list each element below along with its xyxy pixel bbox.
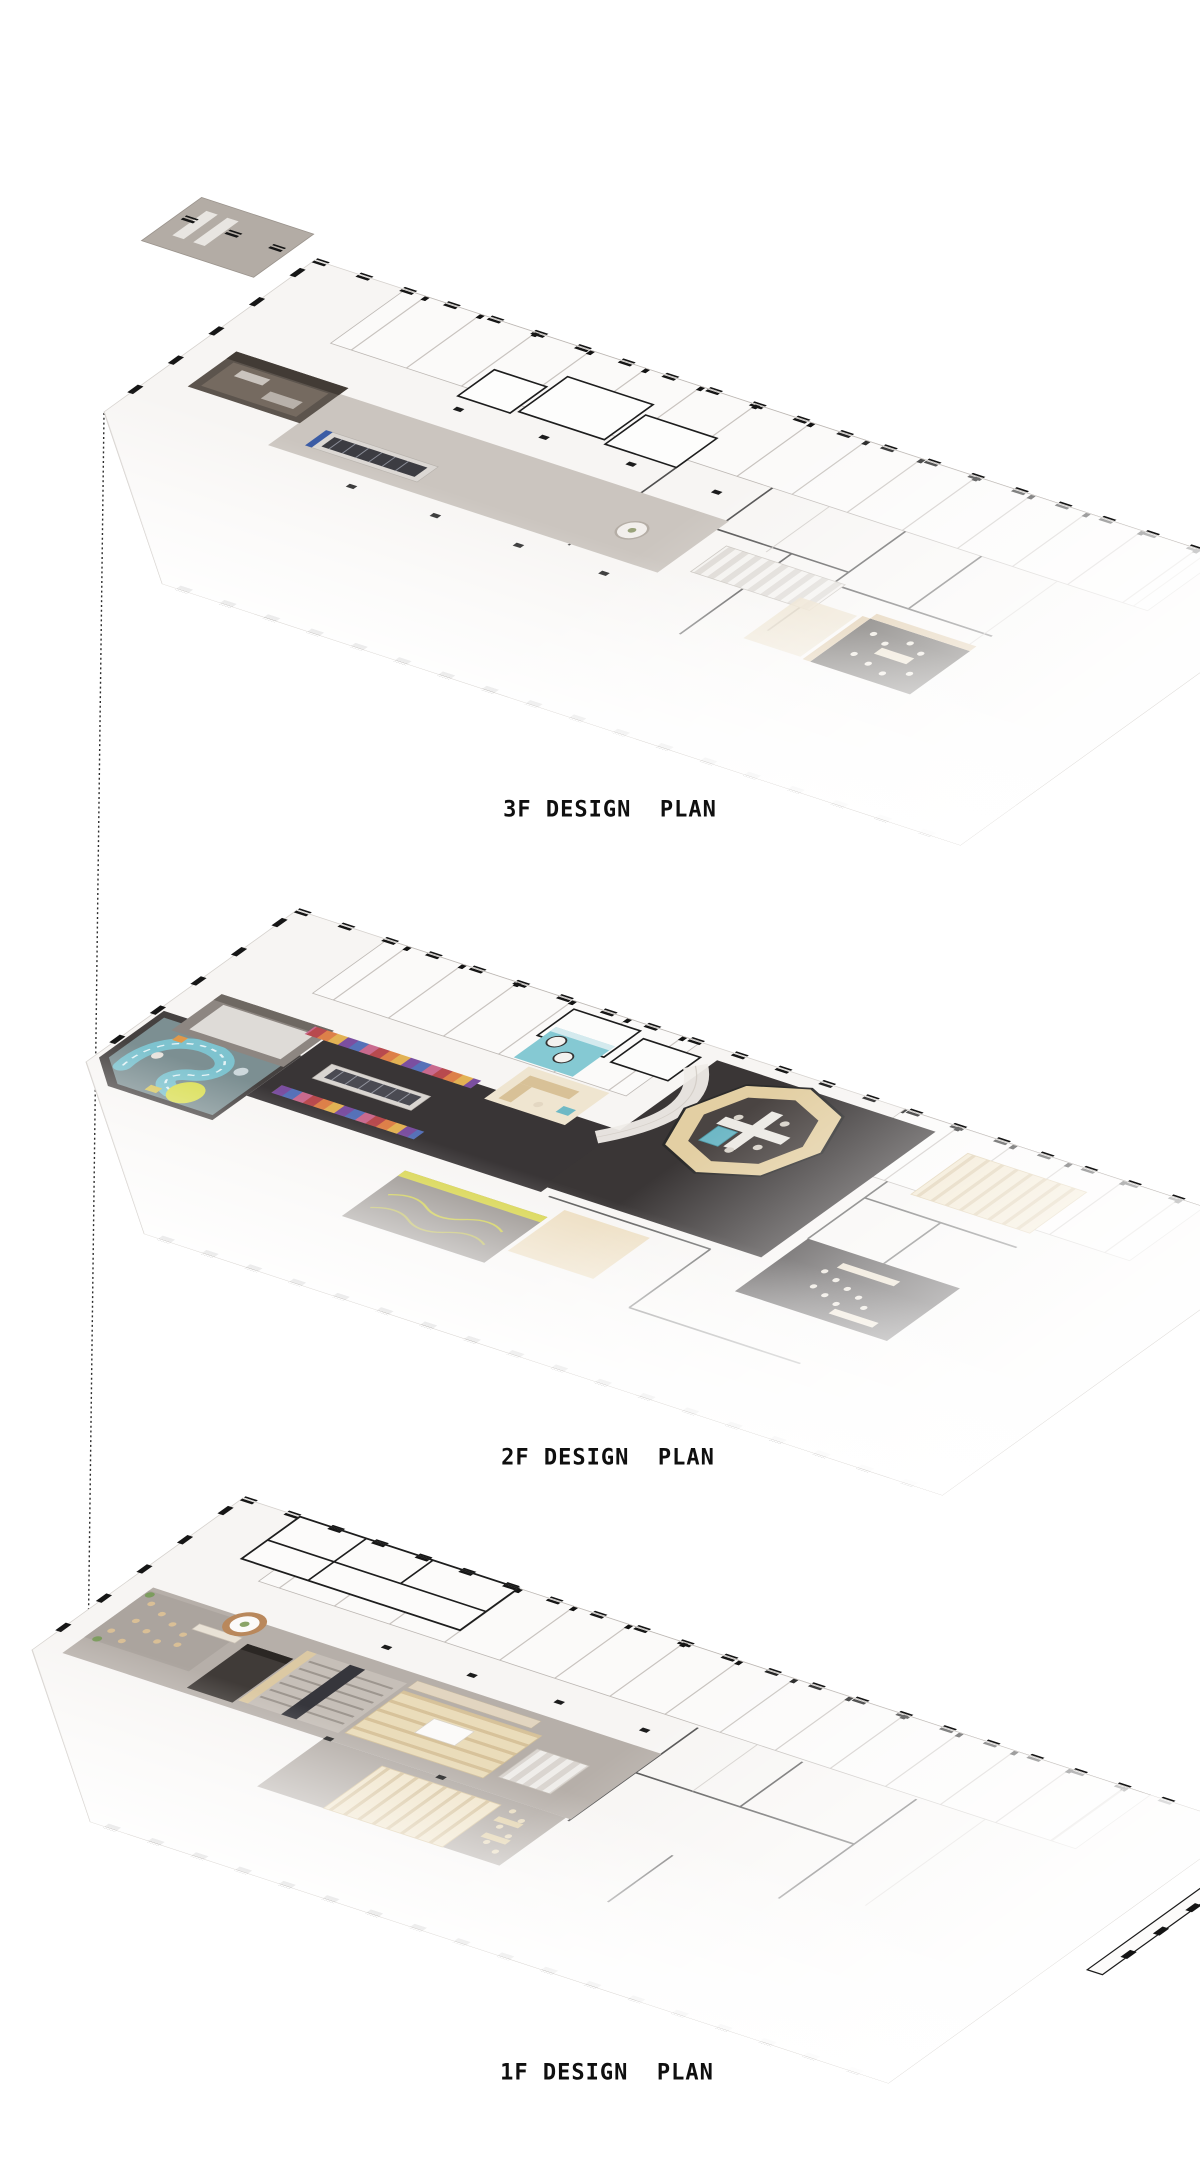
fade-bottom-1f [0, 1498, 1200, 2083]
floor-plan-3f [0, 197, 1200, 846]
fade-bottom-3f [0, 260, 1200, 845]
projection-dotted-line [88, 413, 104, 1657]
floor-label-3f: 3F DESIGN PLAN [503, 798, 717, 823]
fade-bottom-2f [0, 910, 1200, 1495]
floor-label-1f: 1F DESIGN PLAN [500, 2061, 714, 2086]
floor-plan-2f [0, 907, 1200, 1496]
floor-plan-1f [0, 1495, 1200, 2099]
annex-roof-3f [142, 197, 314, 277]
page: 3F DESIGN PLAN 2F DESIGN PLAN 1F DESIGN … [0, 0, 1200, 2172]
floor-label-2f: 2F DESIGN PLAN [501, 1446, 715, 1471]
scene-svg [0, 0, 1200, 2172]
